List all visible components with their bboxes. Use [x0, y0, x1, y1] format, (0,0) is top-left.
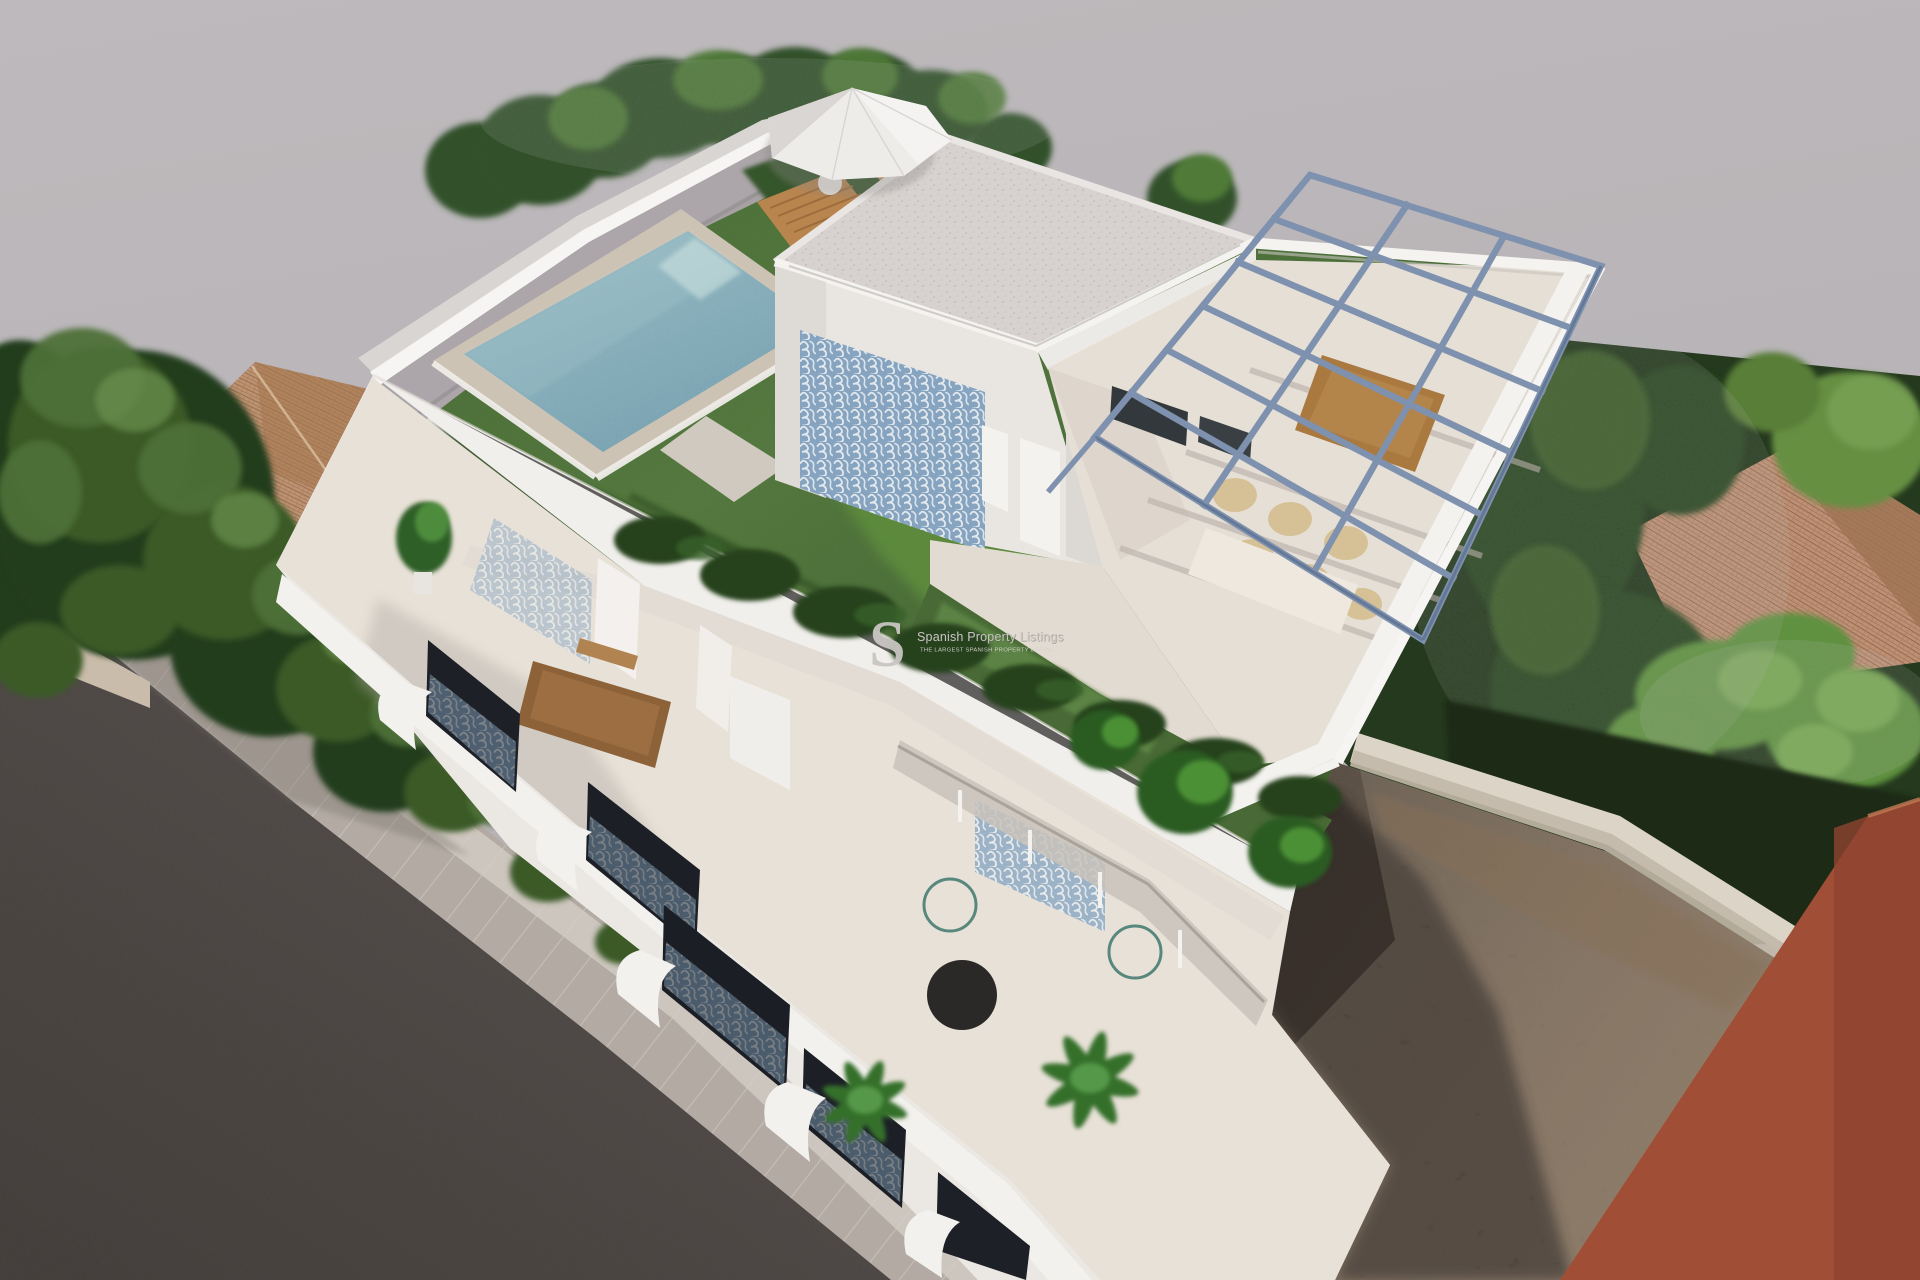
svg-text:Spanish Property Listings: Spanish Property Listings — [917, 630, 1064, 644]
svg-text:S: S — [869, 608, 906, 681]
svg-text:THE LARGEST SPANISH PROPERTY L: THE LARGEST SPANISH PROPERTY LISTING — [920, 648, 1055, 654]
